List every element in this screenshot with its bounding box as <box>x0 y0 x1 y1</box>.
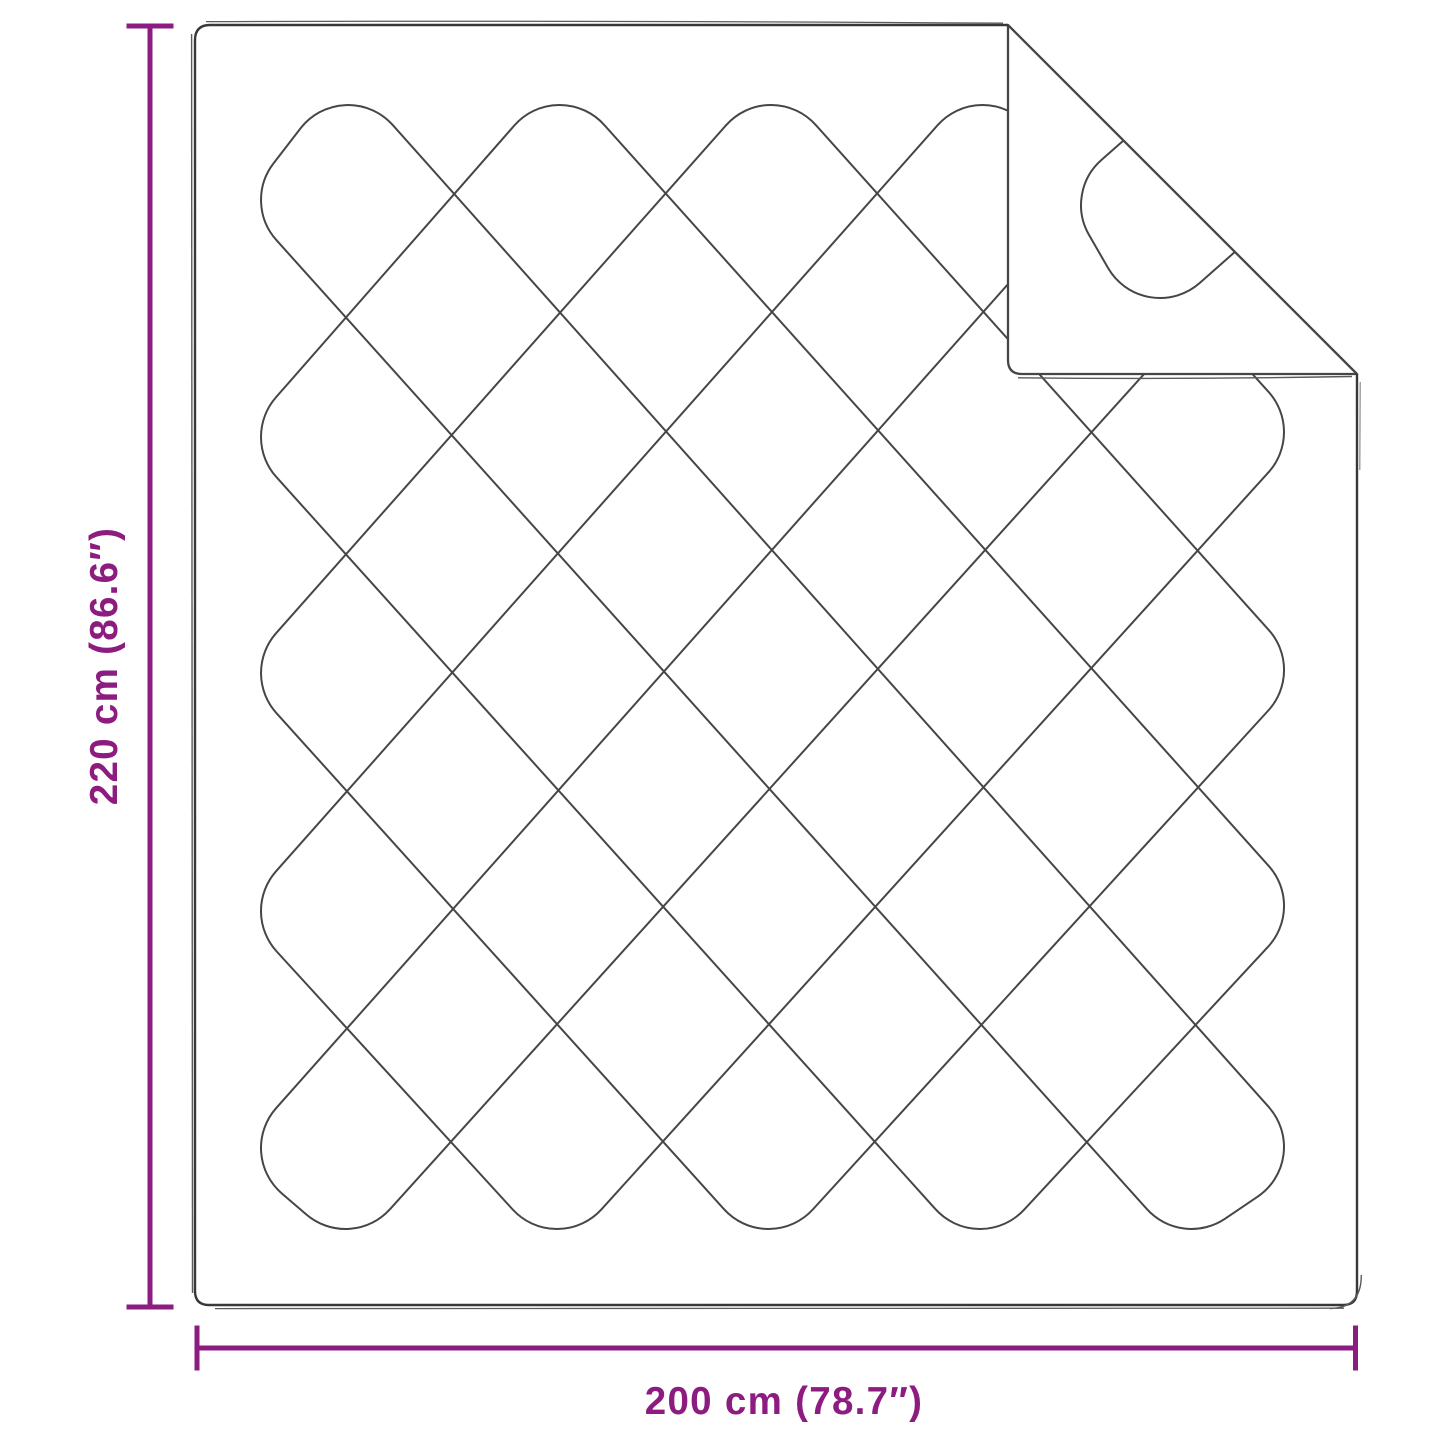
svg-text:200 cm (78.7″): 200 cm (78.7″) <box>645 1380 924 1423</box>
svg-text:220 cm (86.6″): 220 cm (86.6″) <box>83 527 126 806</box>
